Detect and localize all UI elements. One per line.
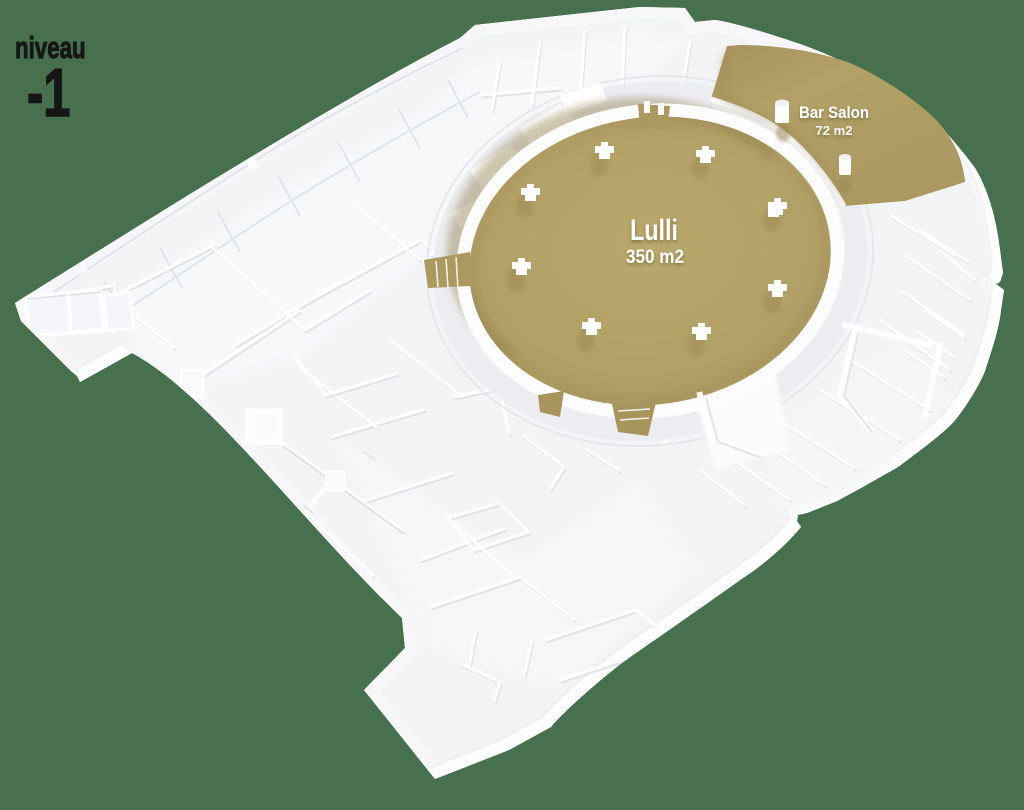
svg-text:Lulli: Lulli (630, 214, 678, 247)
svg-text:72 m2: 72 m2 (816, 124, 853, 138)
svg-text:-1: -1 (27, 54, 71, 131)
svg-text:Bar Salon: Bar Salon (799, 104, 869, 122)
svg-text:350 m2: 350 m2 (626, 246, 684, 268)
